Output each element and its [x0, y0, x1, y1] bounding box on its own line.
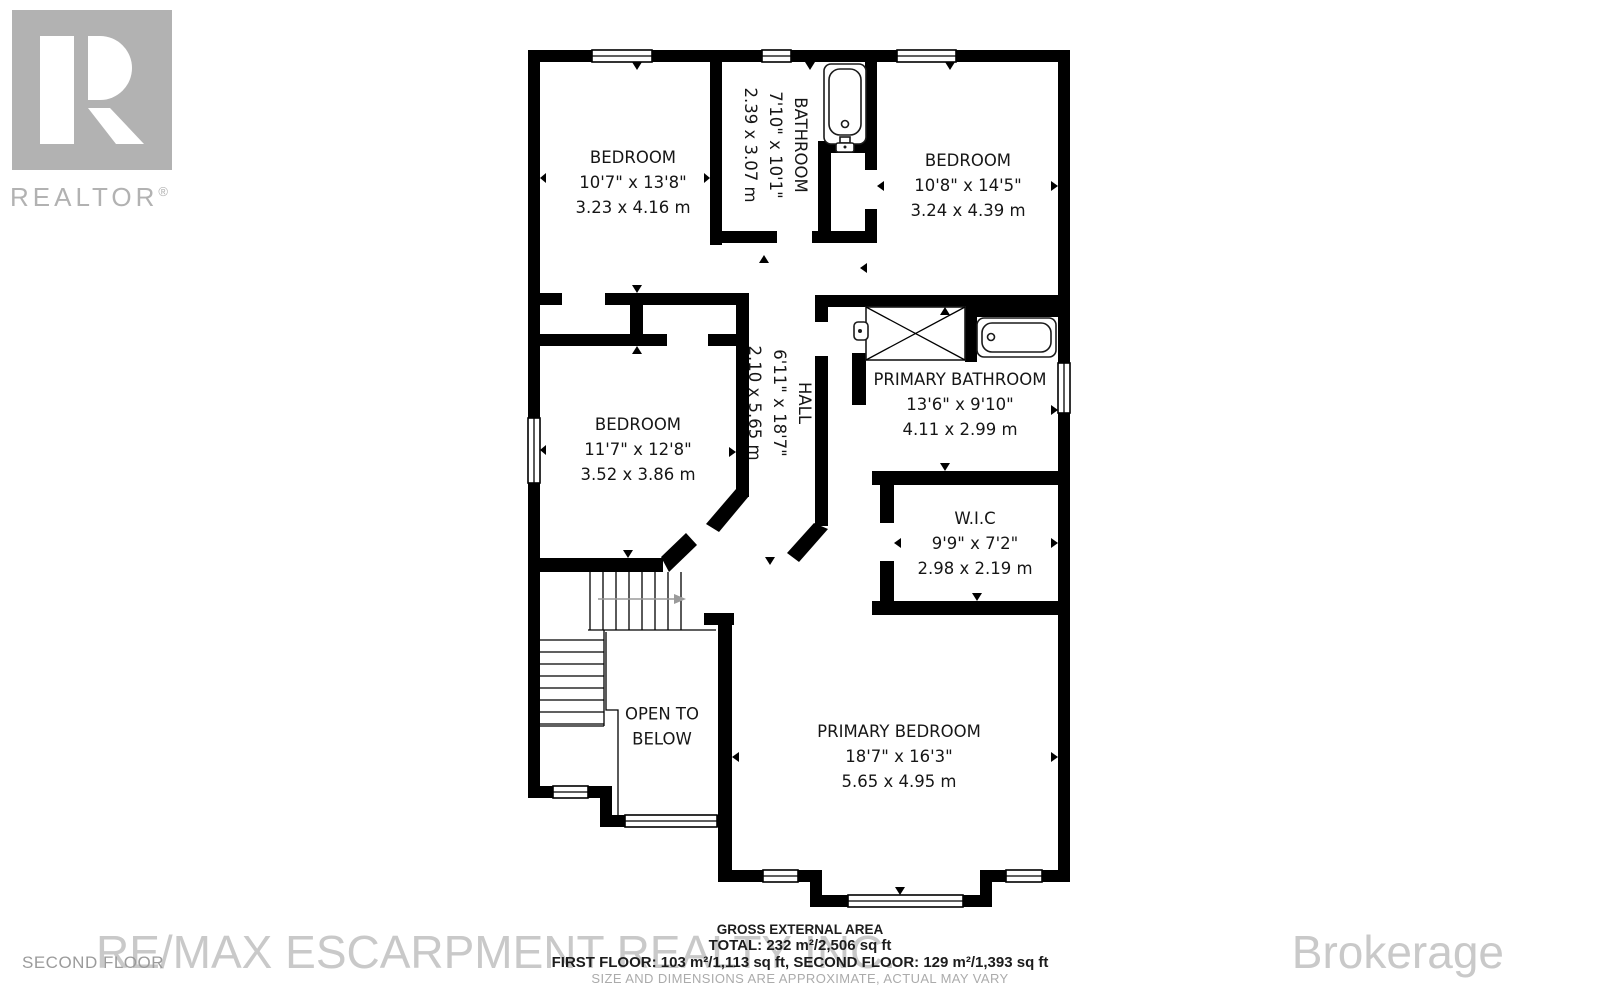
area-summary: GROSS EXTERNAL AREA TOTAL: 232 m²/2,506 …: [0, 922, 1600, 986]
room-name: BATHROOM: [787, 87, 812, 202]
window: [625, 815, 717, 827]
room-label-wic: W.I.C 9'9" x 7'2" 2.98 x 2.19 m: [917, 507, 1032, 581]
room-name-line2: BELOW: [625, 727, 699, 752]
room-dim-imperial: 18'7" x 16'3": [817, 745, 981, 770]
room-dim-imperial: 11'7" x 12'8": [580, 438, 695, 463]
room-name: PRIMARY BEDROOM: [817, 720, 981, 745]
room-dim-imperial: 13'6" x 9'10": [873, 393, 1046, 418]
window: [528, 418, 540, 483]
sink-icon-primary-bath: [854, 322, 868, 340]
room-label-bedroom-middle-left: BEDROOM 11'7" x 12'8" 3.52 x 3.86 m: [580, 413, 695, 487]
window: [1006, 870, 1042, 882]
realtor-logo: REALTOR®: [10, 8, 230, 213]
room-label-bedroom-top-right: BEDROOM 10'8" x 14'5" 3.24 x 4.39 m: [910, 149, 1025, 223]
window: [592, 50, 652, 62]
room-label-bathroom: BATHROOM 7'10" x 10'1" 2.39 x 3.07 m: [738, 87, 812, 202]
room-dim-metric: 2.98 x 2.19 m: [917, 556, 1032, 581]
shower-icon-primary-bath: [866, 307, 965, 360]
room-label-primary-bedroom: PRIMARY BEDROOM 18'7" x 16'3" 5.65 x 4.9…: [817, 720, 981, 794]
window: [762, 50, 791, 62]
window: [553, 786, 588, 798]
room-name: PRIMARY BATHROOM: [873, 368, 1046, 393]
realtor-logo-word: REALTOR: [10, 182, 158, 212]
area-disclaimer: SIZE AND DIMENSIONS ARE APPROXIMATE, ACT…: [0, 971, 1600, 986]
area-total: TOTAL: 232 m²/2,506 sq ft: [0, 937, 1600, 954]
bathtub-icon-main-bath: [824, 64, 866, 144]
realtor-logo-label: REALTOR®: [10, 182, 230, 213]
stairs-icon: [540, 572, 716, 815]
bathtub-icon-primary-bath: [977, 318, 1056, 357]
floorplan-page: BEDROOM 10'7" x 13'8" 3.23 x 4.16 m BATH…: [0, 0, 1600, 1000]
room-dim-imperial: 7'10" x 10'1": [763, 87, 788, 202]
registered-trademark-icon: ®: [158, 184, 168, 199]
room-dim-metric: 4.11 x 2.99 m: [873, 417, 1046, 442]
room-dim-imperial: 6'11" x 18'7": [767, 345, 792, 460]
room-label-hall: HALL 6'11" x 18'7" 2.10 x 5.65 m: [742, 345, 816, 460]
room-dim-metric: 5.65 x 4.95 m: [817, 769, 981, 794]
room-dim-imperial: 10'8" x 14'5": [910, 174, 1025, 199]
room-name: BEDROOM: [580, 413, 695, 438]
room-label-primary-bathroom: PRIMARY BATHROOM 13'6" x 9'10" 4.11 x 2.…: [873, 368, 1046, 442]
window: [897, 50, 956, 62]
room-name: BEDROOM: [575, 146, 690, 171]
window: [763, 870, 798, 882]
room-label-open-to-below: OPEN TO BELOW: [625, 702, 699, 752]
realtor-r-icon: [10, 8, 174, 172]
room-dim-metric: 2.39 x 3.07 m: [738, 87, 763, 202]
room-name: W.I.C: [917, 507, 1032, 532]
room-dim-metric: 3.23 x 4.16 m: [575, 195, 690, 220]
room-dim-metric: 3.52 x 3.86 m: [580, 462, 695, 487]
window: [1058, 363, 1070, 413]
room-dim-metric: 2.10 x 5.65 m: [742, 345, 767, 460]
room-name: BEDROOM: [910, 149, 1025, 174]
room-name: HALL: [791, 345, 816, 460]
area-title: GROSS EXTERNAL AREA: [0, 922, 1600, 937]
room-dim-imperial: 9'9" x 7'2": [917, 532, 1032, 557]
area-floors: FIRST FLOOR: 103 m²/1,113 sq ft, SECOND …: [0, 954, 1600, 971]
floor-label: SECOND FLOOR: [22, 953, 164, 973]
room-dim-metric: 3.24 x 4.39 m: [910, 198, 1025, 223]
room-label-bedroom-top-left: BEDROOM 10'7" x 13'8" 3.23 x 4.16 m: [575, 146, 690, 220]
window: [848, 895, 963, 907]
room-name-line1: OPEN TO: [625, 702, 699, 727]
sink-icon-main-bath: [836, 143, 854, 152]
room-dim-imperial: 10'7" x 13'8": [575, 171, 690, 196]
